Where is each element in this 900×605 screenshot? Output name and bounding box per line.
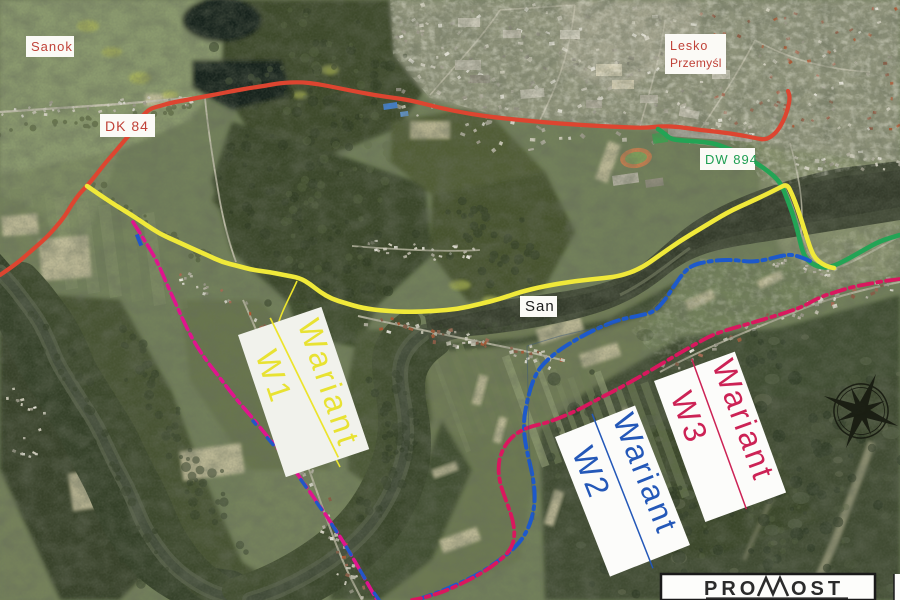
svg-text:Sanok: Sanok (31, 39, 73, 54)
svg-text:Lesko: Lesko (670, 39, 708, 53)
svg-text:OST: OST (791, 578, 844, 600)
svg-text:PRO: PRO (704, 578, 759, 600)
svg-text:DK 84: DK 84 (105, 118, 149, 134)
svg-text:Przemyśl: Przemyśl (670, 56, 722, 70)
svg-text:DW 894: DW 894 (705, 152, 758, 167)
svg-text:San: San (525, 298, 555, 315)
